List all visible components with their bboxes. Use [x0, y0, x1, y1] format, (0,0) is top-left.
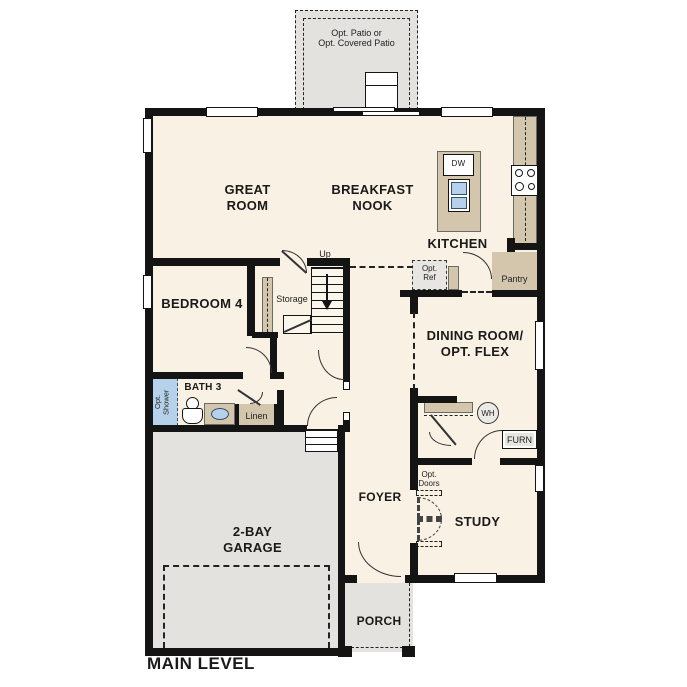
opening-kitchen-hall — [350, 266, 413, 268]
wall-left — [145, 108, 153, 656]
opening-kitchen-dining — [462, 291, 492, 293]
wall-study-top-left — [411, 458, 472, 465]
floor-plan: Opt. Patio or Opt. Covered Patio DW Opt. — [0, 0, 687, 687]
garage-entry-steps — [305, 429, 338, 452]
wall-pantry-bottom — [492, 290, 541, 297]
wall-study-top-right — [500, 458, 545, 465]
wall-greatroom-bottom — [145, 258, 280, 266]
water-heater-label: WH — [478, 409, 498, 418]
patio-area — [295, 10, 418, 110]
porch-label: PORCH — [350, 614, 408, 629]
window — [535, 321, 544, 370]
breakfast-nook-label: BREAKFAST NOOK — [315, 182, 430, 215]
opt-door-leaf — [416, 541, 442, 547]
pantry-label: Pantry — [492, 274, 537, 284]
study-label: STUDY — [440, 514, 515, 530]
stair-arrow-head — [322, 301, 332, 310]
bath-vanity — [204, 403, 235, 425]
window — [535, 465, 544, 492]
furnace: FURN — [502, 430, 537, 449]
storage-rod — [262, 277, 273, 333]
patio-step — [365, 72, 398, 111]
slider-door — [362, 111, 420, 116]
bedroom4-label: BEDROOM 4 — [152, 296, 252, 312]
opt-doors-label: Opt. Doors — [410, 470, 448, 488]
water-heater: WH — [477, 402, 499, 424]
dishwasher: DW — [443, 154, 474, 176]
kitchen-label: KITCHEN — [405, 236, 510, 252]
dishwasher-label: DW — [444, 159, 473, 169]
wall-study-left-lower — [410, 543, 418, 583]
burner-icon — [515, 169, 523, 177]
stair-arrow-line — [326, 274, 328, 302]
patio-label: Opt. Patio or Opt. Covered Patio — [295, 28, 418, 49]
patio-step-line — [366, 85, 397, 86]
garage-label: 2-BAY GARAGE — [200, 524, 305, 557]
wall-linen-right — [277, 390, 284, 428]
sink-basin — [451, 197, 467, 209]
opt-door-leaf — [416, 490, 442, 496]
window — [143, 118, 152, 153]
storage-rod-line — [267, 278, 268, 332]
porch-dashed-bottom — [346, 647, 408, 649]
burner-icon — [527, 169, 535, 177]
linen-label: Linen — [239, 411, 274, 421]
vanity-sink — [211, 408, 229, 420]
garage-door-outline — [163, 565, 330, 648]
storage-label: Storage — [264, 294, 320, 304]
window — [206, 107, 258, 117]
main-level-title: MAIN LEVEL — [147, 653, 347, 674]
opt-ref-label: Opt. Ref — [413, 264, 446, 282]
toilet-base-icon — [182, 408, 203, 424]
dining-label: DINING ROOM/ OPT. FLEX — [415, 328, 535, 361]
bath3-label: BATH 3 — [172, 382, 234, 395]
window — [454, 573, 497, 583]
wall-garage-right — [338, 425, 345, 656]
opening-casing — [343, 381, 350, 390]
porch-post-right — [402, 646, 415, 657]
window — [441, 107, 493, 117]
opt-ref-cabinet — [448, 266, 459, 290]
range-cooktop — [511, 165, 539, 196]
window — [143, 275, 152, 309]
up-label: Up — [312, 249, 338, 259]
opt-ref-box: Opt. Ref — [412, 260, 447, 290]
kitchen-sink — [448, 179, 470, 212]
burner-icon — [515, 182, 524, 191]
coat-closet-shelf — [424, 402, 473, 413]
wall-dining-stub-top — [410, 290, 418, 314]
wall-bedroom-bottom-left — [145, 372, 243, 379]
opening-casing — [343, 412, 350, 421]
linen-closet: Linen — [235, 404, 278, 425]
foyer-label: FOYER — [352, 490, 408, 505]
wall-counter-end — [511, 243, 541, 250]
burner-icon — [528, 183, 535, 190]
furnace-label: FURN — [503, 435, 536, 445]
wall-stairs-right — [343, 258, 350, 383]
great-room-label: GREAT ROOM — [190, 182, 305, 215]
sink-basin — [451, 182, 467, 195]
porch-dashed-right — [408, 583, 410, 647]
